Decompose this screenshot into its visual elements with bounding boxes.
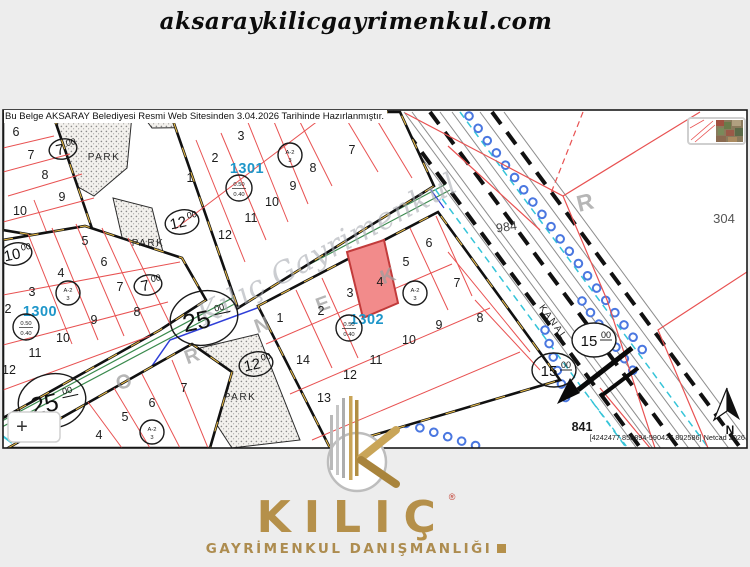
- parcel-number: 11: [370, 353, 383, 367]
- block-number-1301: 1301: [230, 161, 264, 177]
- parcel-number: 10: [402, 333, 416, 347]
- parcel-number: 9: [436, 318, 443, 332]
- map-viewport[interactable]: Kılıç Gayrimenkul O R N E K R PARK PARK …: [0, 0, 750, 562]
- parcel-number: 4: [96, 428, 103, 442]
- parcel-number: 9: [59, 190, 66, 204]
- svg-text:00: 00: [260, 351, 272, 363]
- page: { "site": { "url": "aksaraykilicgayrimen…: [0, 0, 750, 562]
- svg-text:0.40: 0.40: [343, 332, 354, 338]
- parcel-number: 7: [181, 381, 188, 395]
- svg-text:00: 00: [213, 302, 225, 314]
- parcel-number: 2: [5, 302, 12, 316]
- parcel-number: 9: [290, 179, 297, 193]
- parcel-number-984: 984: [495, 219, 518, 236]
- parcel-number-304: 304: [713, 211, 735, 226]
- coordinate-readout: [4242477.858894-590427.802586] Netcad 20…: [590, 433, 745, 442]
- svg-text:A-2: A-2: [147, 427, 156, 433]
- parcel-number: 7: [349, 143, 356, 157]
- park-label: PARK: [224, 392, 257, 403]
- parcel-number: 11: [245, 211, 258, 225]
- block-number-1302: 1302: [350, 312, 384, 328]
- parcel-number: 10: [265, 195, 279, 209]
- svg-text:00: 00: [601, 330, 611, 340]
- parcel-number: 6: [13, 125, 20, 139]
- brand-wordmark-row: KILIÇ®: [0, 492, 712, 543]
- parcel-number: 10: [13, 204, 27, 218]
- parcel-number: 7: [454, 276, 461, 290]
- parcel-number: 8: [134, 305, 141, 319]
- brand-tagline-row: GAYRİMENKUL DANIŞMANLIĞI: [0, 540, 712, 558]
- parcel-number: 3: [238, 129, 245, 143]
- parcel-number: 7: [28, 148, 35, 162]
- zoom-plus-button[interactable]: +: [8, 412, 60, 442]
- svg-text:A-2: A-2: [63, 288, 72, 294]
- svg-text:0.50: 0.50: [343, 322, 354, 328]
- svg-text:A-2: A-2: [410, 288, 419, 294]
- parcel-number: 2: [212, 151, 219, 165]
- parcel-number: 10: [56, 331, 70, 345]
- svg-text:0.40: 0.40: [233, 192, 244, 198]
- parcel-number: 6: [426, 236, 433, 250]
- brand-wordmark: KILIÇ: [257, 492, 449, 543]
- svg-text:00: 00: [61, 385, 73, 397]
- parcel-number: 8: [42, 168, 49, 182]
- park-label: PARK: [132, 238, 165, 249]
- svg-text:00: 00: [150, 272, 162, 284]
- svg-text:+: +: [16, 416, 28, 438]
- svg-text:25: 25: [180, 305, 213, 338]
- parcel-number-highlighted: 4: [377, 275, 384, 289]
- parcel-number: 8: [310, 161, 317, 175]
- park-label: PARK: [88, 152, 121, 163]
- svg-text:3: 3: [288, 158, 291, 164]
- svg-text:0.40: 0.40: [20, 331, 31, 337]
- svg-text:15: 15: [581, 333, 598, 350]
- document-notice: Bu Belge AKSARAY Belediyesi Resmi Web Si…: [4, 110, 387, 123]
- svg-text:3: 3: [150, 435, 153, 441]
- svg-text:00: 00: [65, 136, 77, 148]
- svg-text:3: 3: [413, 296, 416, 302]
- parcel-number: 9: [91, 313, 98, 327]
- parcel-number: 12: [2, 363, 16, 377]
- parcel-number: 6: [101, 255, 108, 269]
- cadastral-map-svg: Kılıç Gayrimenkul O R N E K R PARK PARK …: [0, 0, 750, 562]
- parcel-number: 1: [187, 171, 194, 185]
- parcel-number: 8: [477, 311, 484, 325]
- parcel-number: 4: [58, 266, 65, 280]
- parcel-number: 12: [218, 228, 232, 242]
- registered-mark: ®: [449, 492, 456, 502]
- svg-text:10: 10: [2, 245, 22, 265]
- map-content: Kılıç Gayrimenkul O R N E K R PARK PARK …: [0, 108, 750, 450]
- parcel-number: 11: [29, 346, 42, 360]
- svg-text:00: 00: [186, 209, 198, 221]
- svg-text:A-2: A-2: [285, 150, 294, 156]
- svg-text:0.50: 0.50: [233, 182, 244, 188]
- svg-text:3: 3: [66, 296, 69, 302]
- svg-text:15: 15: [541, 363, 558, 380]
- parcel-number: 12: [343, 368, 357, 382]
- block-number-1300: 1300: [23, 304, 57, 320]
- svg-text:12: 12: [242, 355, 262, 375]
- parcel-number: 7: [117, 280, 124, 294]
- svg-text:12: 12: [168, 213, 188, 233]
- parcel-number: 1: [277, 311, 284, 325]
- parcel-number: 3: [347, 286, 354, 300]
- parcel-number: 5: [403, 255, 410, 269]
- parcel-number: 6: [149, 396, 156, 410]
- parcel-number: 14: [296, 353, 310, 367]
- svg-text:00: 00: [561, 360, 571, 370]
- road-width-15: 15 00: [572, 323, 616, 357]
- parcel-number: 2: [318, 304, 325, 318]
- brand-tagline: GAYRİMENKUL DANIŞMANLIĞI: [206, 541, 492, 557]
- svg-text:00: 00: [20, 241, 32, 253]
- parcel-number: 5: [122, 410, 129, 424]
- basemap-inset-control[interactable]: [688, 118, 745, 144]
- parcel-number-841: 841: [572, 420, 593, 434]
- svg-text:0.50: 0.50: [20, 321, 31, 327]
- gold-square-decoration: [497, 544, 506, 553]
- parcel-number: 13: [317, 391, 331, 405]
- parcel-number: 3: [29, 285, 36, 299]
- parcel-number: 5: [82, 234, 89, 248]
